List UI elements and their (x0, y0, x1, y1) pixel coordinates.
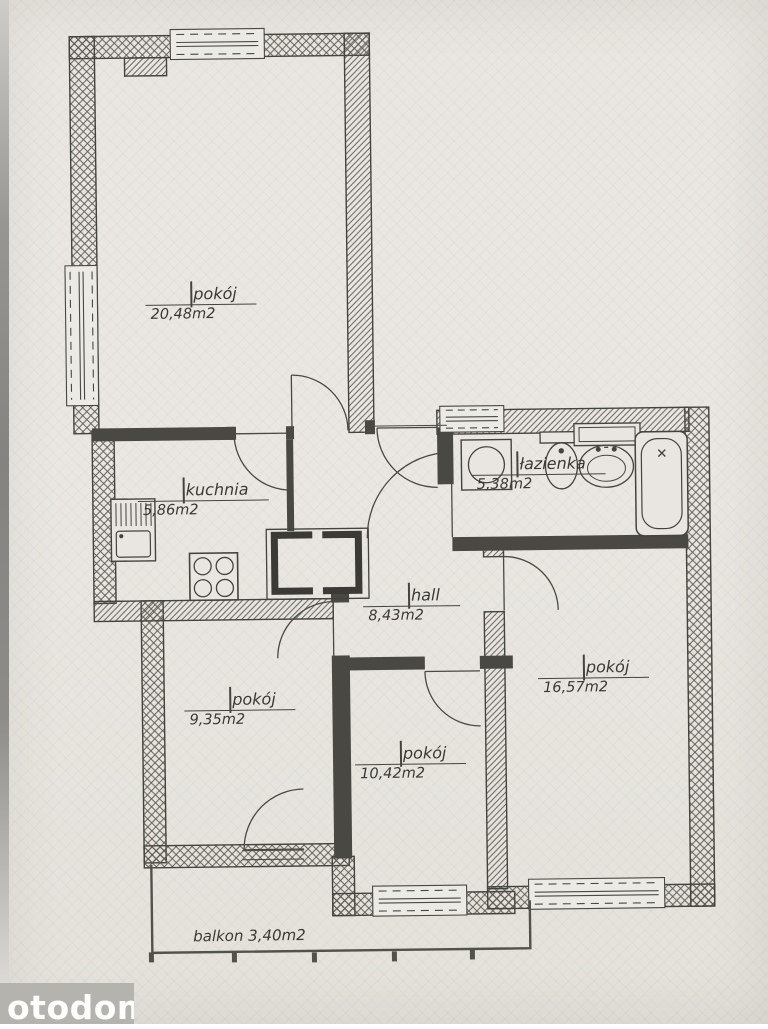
room-label-pokoj-2: pokój 9,35m2 (184, 689, 296, 728)
room-name: pokój (193, 284, 237, 304)
door-room1-icon (291, 374, 348, 431)
floor-plan-drawing (0, 0, 768, 1029)
room-label-hall: hall 8,43m2 (363, 585, 460, 624)
window-top-icon (170, 28, 264, 59)
otodom-watermark: otodom (0, 983, 134, 1024)
floor-plan: pokój 20,48m2 kuchnia 5,86m2 łazienka 5,… (0, 0, 768, 1029)
room-area: 8,43m2 (363, 607, 460, 624)
room-label-pokoj-1: pokój 20,48m2 (145, 284, 257, 323)
photo-edge-strip (0, 0, 9, 1024)
room-label-pokoj-4: pokój 16,57m2 (538, 657, 650, 696)
room-name: pokój (586, 657, 630, 677)
room-name: kuchnia (186, 480, 249, 500)
room-name: pokój (403, 743, 447, 763)
room-name: łazienka (519, 454, 586, 474)
room-area: 20,48m2 (145, 306, 257, 323)
door-room4-icon (504, 556, 559, 611)
balcony-label: balkon 3,40m2 (193, 926, 306, 945)
door-entrance-icon (377, 427, 438, 488)
door-balcony-icon (243, 789, 304, 850)
room-area: 16,57m2 (538, 679, 650, 696)
room-label-kuchnia: kuchnia 5,86m2 (138, 479, 269, 519)
room-name: pokój (232, 689, 276, 709)
bathtub-icon (635, 431, 688, 536)
window-bottom-middle-icon (373, 885, 467, 916)
room-area: 10,42m2 (355, 765, 467, 782)
window-bottom-right-icon (528, 878, 664, 910)
utility-shaft (266, 528, 369, 599)
room-area: 5,86m2 (138, 501, 269, 519)
window-left-icon (65, 265, 99, 405)
floorplan-photo: pokój 20,48m2 kuchnia 5,86m2 łazienka 5,… (0, 0, 768, 1024)
room-area: 5,38m2 (472, 475, 606, 493)
room-label-pokoj-3: pokój 10,42m2 (355, 743, 467, 782)
otodom-watermark-text: otodom (7, 991, 134, 1024)
window-bathroom-icon (440, 406, 504, 433)
room-name: hall (411, 585, 440, 604)
room-label-lazienka: łazienka 5,38m2 (471, 453, 606, 493)
stove-icon (189, 553, 238, 601)
door-room3-icon (425, 671, 481, 727)
room-area: 9,35m2 (184, 711, 296, 728)
